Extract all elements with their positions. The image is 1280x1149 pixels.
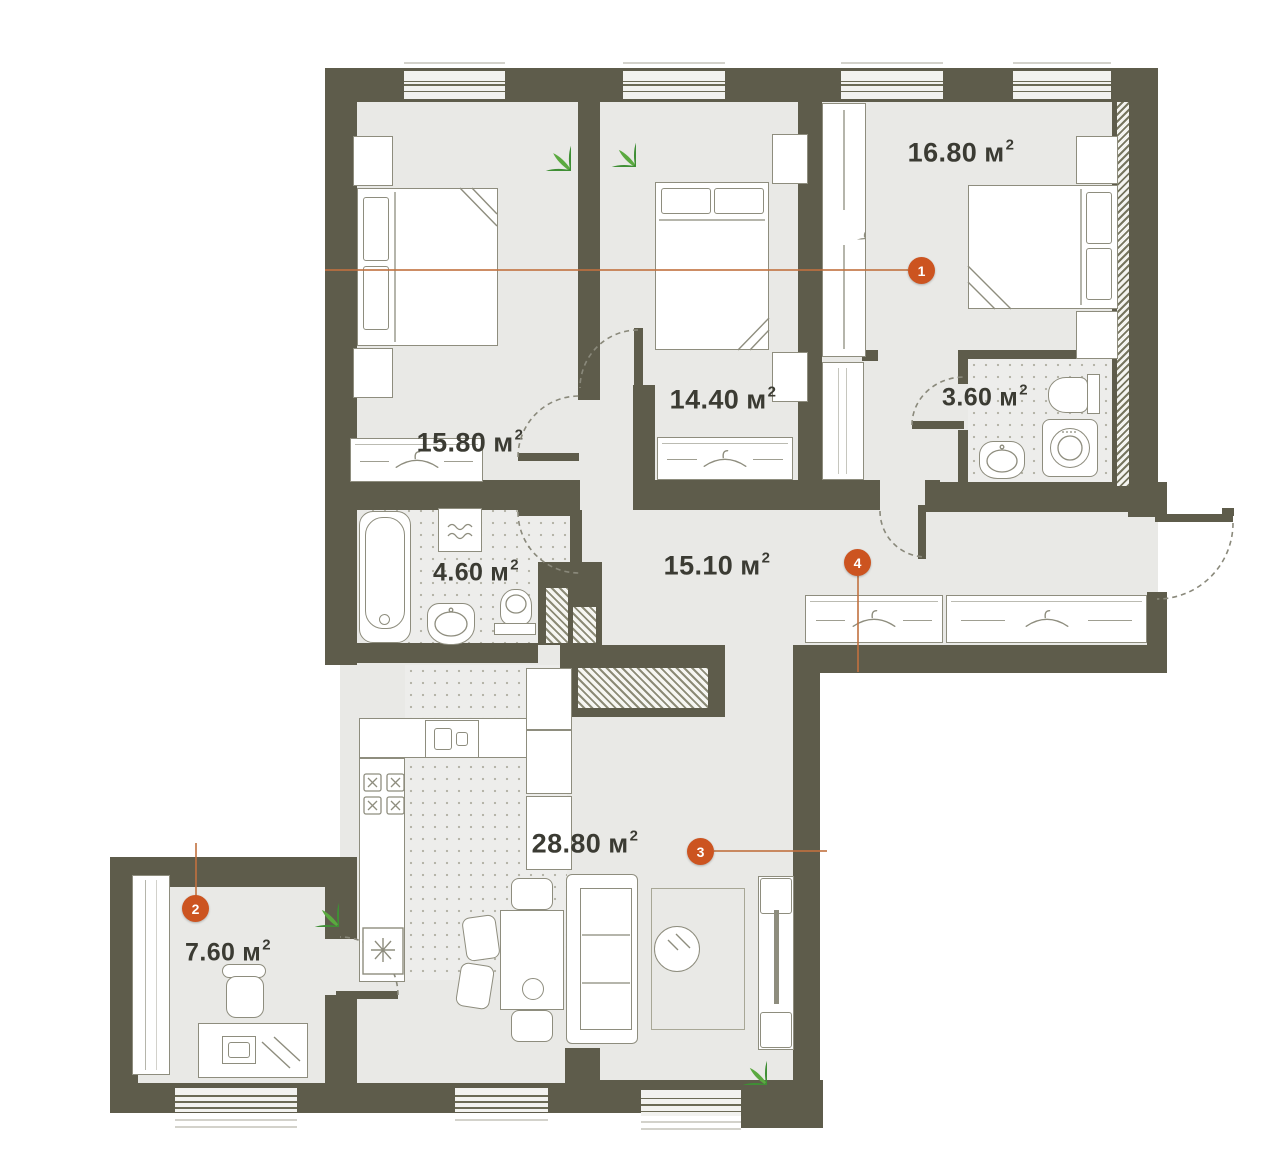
room-label-bedroom-a: 15.80м2 bbox=[417, 428, 524, 459]
room-label-bedroom-b: 14.40м2 bbox=[670, 385, 777, 416]
marker-4[interactable]: 4 bbox=[844, 549, 871, 576]
marker-line-4 bbox=[857, 576, 859, 672]
marker-1[interactable]: 1 bbox=[908, 257, 935, 284]
plant-icon bbox=[515, 115, 571, 171]
plant-icon bbox=[582, 113, 636, 167]
marker-3[interactable]: 3 bbox=[687, 838, 714, 865]
labels: 15.80м2 14.40м2 16.80м2 3.60м2 4.60м2 15… bbox=[0, 0, 1280, 1149]
marker-line-1 bbox=[325, 269, 908, 271]
plant-icon bbox=[713, 1031, 767, 1085]
plant-icon bbox=[285, 873, 339, 927]
marker-2[interactable]: 2 bbox=[182, 895, 209, 922]
marker-line-2 bbox=[195, 843, 197, 896]
marker-line-3 bbox=[714, 850, 827, 852]
room-label-office: 7.60м2 bbox=[185, 938, 271, 967]
room-label-bedroom-c: 16.80м2 bbox=[908, 138, 1015, 169]
room-label-hallway: 15.10м2 bbox=[664, 551, 771, 582]
room-label-bathroom-main: 4.60м2 bbox=[433, 558, 519, 587]
room-label-living-kitchen: 28.80м2 bbox=[532, 829, 639, 860]
room-label-bathroom-small: 3.60м2 bbox=[942, 383, 1028, 412]
floor-plan: 15.80м2 14.40м2 16.80м2 3.60м2 4.60м2 15… bbox=[0, 0, 1280, 1149]
